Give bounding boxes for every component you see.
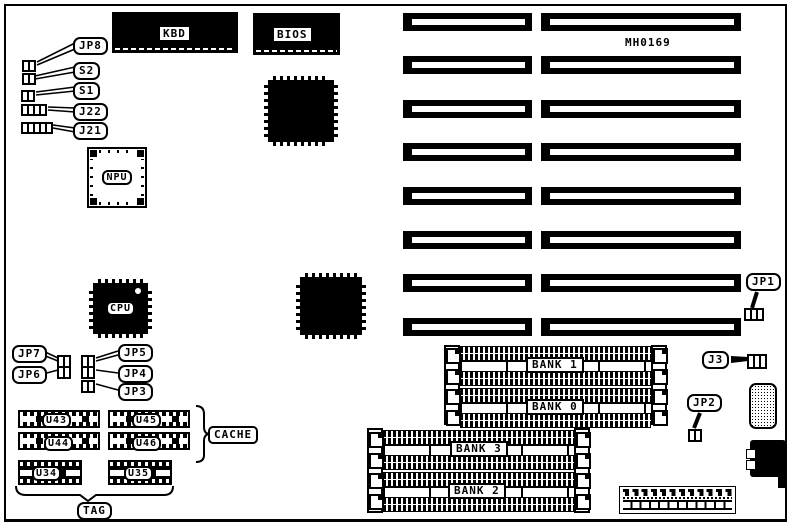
j22-label: J22	[73, 103, 108, 121]
j3-jumper	[747, 354, 767, 369]
simm-clip	[369, 494, 384, 510]
s1-jumper	[21, 90, 35, 102]
simm-clip	[446, 389, 461, 405]
jp6-label: JP6	[12, 366, 47, 384]
s2-jumper	[22, 73, 36, 85]
j3-label: J3	[702, 351, 729, 369]
board-code: MH0169	[625, 36, 671, 49]
simm-clip	[446, 348, 461, 364]
tag-group-label: TAG	[77, 502, 112, 520]
jp2-jumper	[688, 429, 702, 442]
simm-clip	[576, 453, 591, 469]
u45-label: U45	[132, 413, 161, 428]
simm-clip	[369, 432, 384, 448]
j21-label: J21	[73, 122, 108, 140]
simm-clip	[576, 494, 591, 510]
bios-chip-label: BIOS	[274, 28, 311, 41]
s1-label: S1	[73, 82, 100, 100]
s2-label: S2	[73, 62, 100, 80]
jp1-jumper	[744, 308, 764, 321]
leader-lines	[0, 0, 791, 527]
cpu-label: CPU	[106, 301, 135, 316]
simm-clip	[576, 432, 591, 448]
npu-label: NPU	[102, 170, 131, 185]
din-clip	[746, 449, 756, 459]
simm-clip	[369, 473, 384, 489]
bank2-label: BANK 2	[448, 483, 506, 499]
din-clip	[746, 460, 756, 470]
kbd-chip-label: KBD	[160, 27, 189, 40]
jp6-jumper	[57, 366, 71, 379]
tag-brace	[16, 486, 173, 501]
jp8-jumper	[22, 60, 36, 72]
simm-clip	[446, 410, 461, 426]
simm-clip	[369, 453, 384, 469]
jp3-label: JP3	[118, 383, 153, 401]
jp1-label: JP1	[746, 273, 781, 291]
motherboard-diagram: KBD BIOS NPU CPU JP8 S2 S1 J22 J21	[0, 0, 791, 527]
u35-label: U35	[124, 466, 153, 481]
simm-clip	[446, 369, 461, 385]
u34-label: U34	[32, 466, 61, 481]
j22-jumper	[21, 104, 47, 116]
jp5-label: JP5	[118, 344, 153, 362]
simm-clip	[653, 410, 668, 426]
bank1-label: BANK 1	[526, 357, 584, 373]
simm-clip	[576, 473, 591, 489]
simm-clip	[653, 348, 668, 364]
jp7-label: JP7	[12, 345, 47, 363]
simm-clip	[653, 389, 668, 405]
u43-label: U43	[42, 413, 71, 428]
u44-label: U44	[44, 436, 73, 451]
simm-clip	[653, 369, 668, 385]
jp3-jumper	[81, 380, 95, 393]
bank3-label: BANK 3	[450, 441, 508, 457]
jp4-jumper	[81, 366, 95, 379]
bank0-label: BANK 0	[526, 399, 584, 415]
jp8-label: JP8	[73, 37, 108, 55]
jp4-label: JP4	[118, 365, 153, 383]
jp2-label: JP2	[687, 394, 722, 412]
u46-label: U46	[132, 436, 161, 451]
j21-jumper	[21, 122, 53, 134]
cache-group-label: CACHE	[208, 426, 258, 444]
